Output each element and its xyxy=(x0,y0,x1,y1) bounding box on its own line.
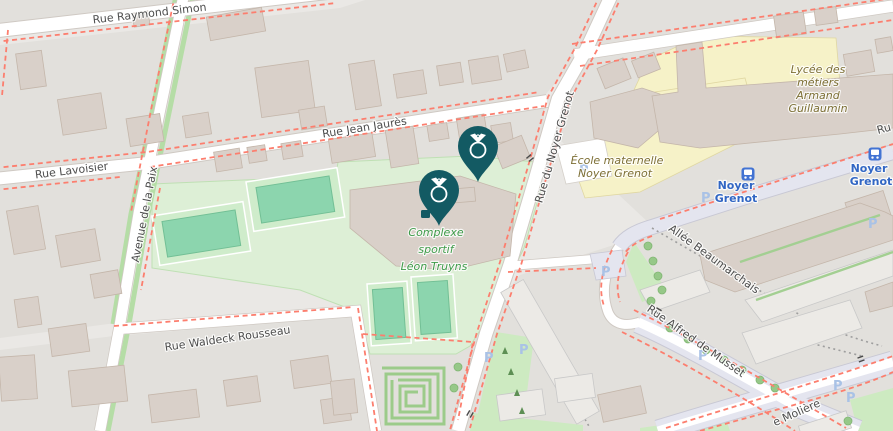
svg-text:Grenot: Grenot xyxy=(715,192,758,205)
svg-text:Armand: Armand xyxy=(795,89,840,102)
ecole-label: École maternelle Noyer Grenot xyxy=(571,154,664,180)
svg-text:Guillaumin: Guillaumin xyxy=(788,102,847,115)
svg-text:Complexe: Complexe xyxy=(408,226,463,239)
parking-icon: P xyxy=(601,265,611,280)
parking-icon: P xyxy=(846,391,856,406)
svg-text:Noyer: Noyer xyxy=(851,162,888,175)
svg-text:École maternelle: École maternelle xyxy=(571,154,664,167)
parking-icon: P xyxy=(484,351,494,366)
svg-text:métiers: métiers xyxy=(797,76,839,89)
parking-icon: P xyxy=(519,343,529,358)
svg-text:Lycée des: Lycée des xyxy=(791,63,846,76)
map-canvas[interactable]: P P P P P P P P P Rue Raymond Simon Rue … xyxy=(0,0,893,431)
lycee-label: Lycée des métiers Armand Guillaumin xyxy=(788,63,847,115)
parking-icon: P xyxy=(833,379,843,394)
svg-text:Grenot: Grenot xyxy=(850,175,893,188)
bus-stop-icon xyxy=(869,148,882,161)
parking-icon: P xyxy=(868,217,878,232)
svg-text:sportif: sportif xyxy=(418,243,455,256)
parking-icon: P xyxy=(701,191,711,206)
svg-text:Noyer: Noyer xyxy=(718,179,755,192)
svg-text:Léon Truyns: Léon Truyns xyxy=(401,260,468,273)
svg-text:Noyer Grenot: Noyer Grenot xyxy=(578,167,653,180)
